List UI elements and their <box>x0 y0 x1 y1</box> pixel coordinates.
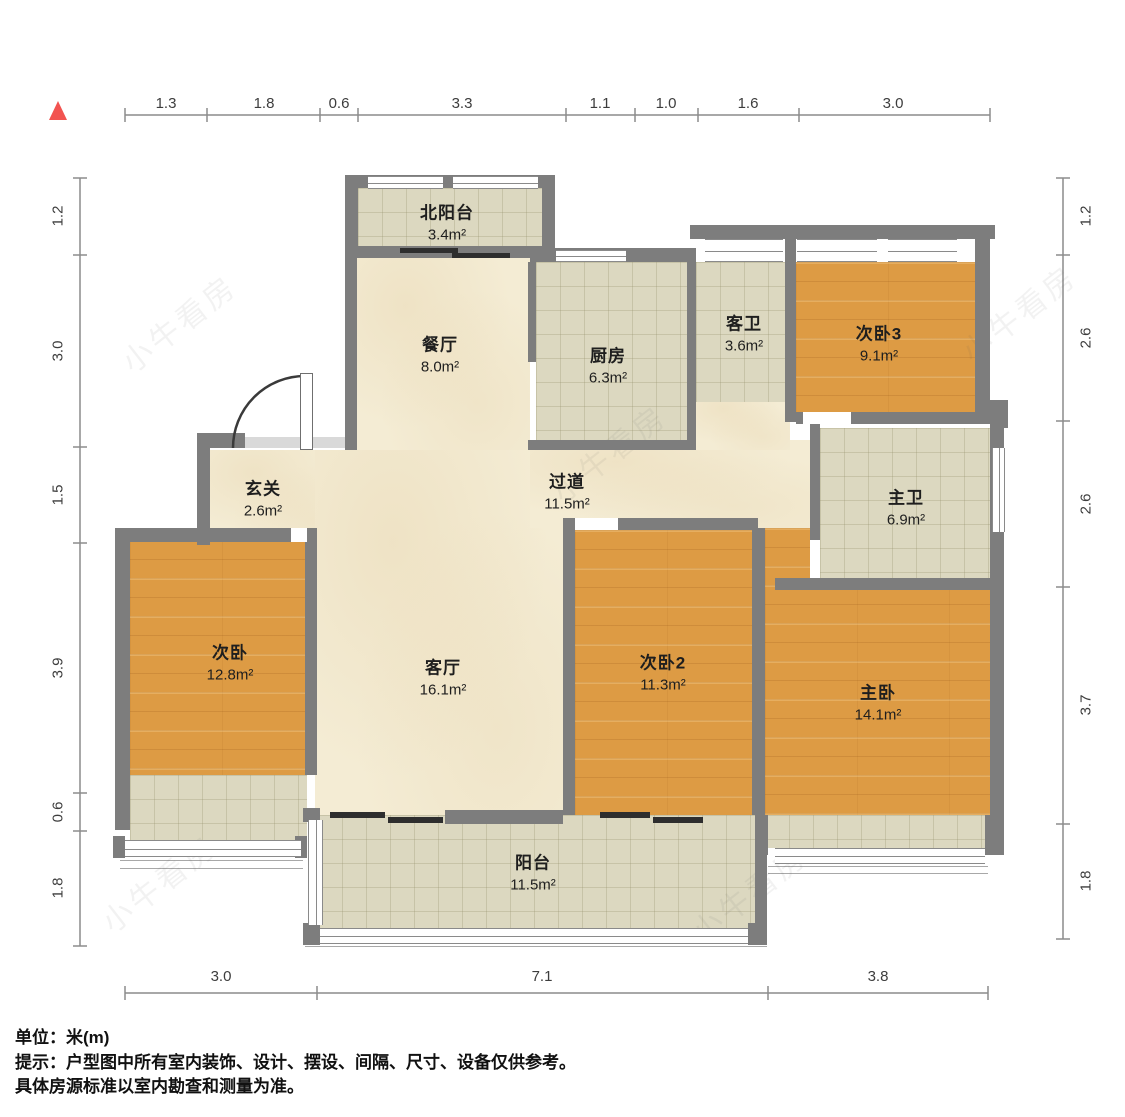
room-label-foyer: 玄关 2.6m² <box>244 475 282 520</box>
sliding-door <box>452 253 510 258</box>
room-label-guest-bath: 客卫 3.6m² <box>725 310 763 355</box>
footer-notes: 单位：米(m) 提示：户型图中所有室内装饰、设计、摆设、间隔、尺寸、设备仅供参考… <box>15 1026 576 1100</box>
room-label-kitchen: 厨房 6.3m² <box>589 342 627 387</box>
window <box>888 239 957 262</box>
dim-bottom-1: 3.0 <box>211 968 232 985</box>
room-label-balcony: 阳台 11.5m² <box>510 849 556 894</box>
dim-bottom-2: 7.1 <box>532 968 553 985</box>
room-label-north-balcony: 北阳台 3.4m² <box>420 199 474 244</box>
window <box>797 239 877 262</box>
sliding-door <box>600 812 650 818</box>
window <box>453 176 538 189</box>
window <box>705 239 783 262</box>
dim-right-5: 1.8 <box>1078 871 1095 892</box>
window-bay-master <box>775 848 985 864</box>
dim-left-4: 3.9 <box>50 658 67 679</box>
dim-left-1: 1.2 <box>50 206 67 227</box>
sliding-door <box>330 812 385 818</box>
room-label-master-bath: 主卫 6.9m² <box>887 484 925 529</box>
dim-left-2: 3.0 <box>50 341 67 362</box>
dim-top-7: 1.6 <box>738 95 759 112</box>
dim-left-6: 1.8 <box>50 878 67 899</box>
room-label-dining: 餐厅 8.0m² <box>421 331 459 376</box>
north-arrow-icon <box>49 101 67 120</box>
window-bay-bedroom <box>125 840 301 857</box>
window <box>368 176 443 189</box>
unit-note: 单位：米(m) <box>15 1026 576 1051</box>
window <box>992 448 1005 532</box>
sliding-door <box>388 817 443 823</box>
dim-bottom-3: 3.8 <box>868 968 889 985</box>
tip-note-2: 具体房源标准以室内勘查和测量为准。 <box>15 1075 576 1100</box>
floorplan-canvas: 1.3 1.8 0.6 3.3 1.1 1.0 1.6 3.0 1.2 3.0 … <box>0 0 1125 1117</box>
entry-door-leaf <box>300 373 313 450</box>
room-label-living: 客厅 16.1m² <box>420 654 467 699</box>
room-label-bedroom: 次卧 12.8m² <box>207 639 254 684</box>
dim-right-3: 2.6 <box>1078 494 1095 515</box>
room-label-bedroom2: 次卧2 11.3m² <box>640 649 686 694</box>
sliding-door <box>653 817 703 823</box>
dim-right-1: 1.2 <box>1078 206 1095 227</box>
dim-left-3: 1.5 <box>50 485 67 506</box>
tip-note: 提示：户型图中所有室内装饰、设计、摆设、间隔、尺寸、设备仅供参考。 <box>15 1051 576 1076</box>
dim-right-2: 2.6 <box>1078 328 1095 349</box>
entry-door-arc <box>0 0 1125 1117</box>
room-label-master-bedroom: 主卧 14.1m² <box>855 679 902 724</box>
room-label-hallway: 过道 11.5m² <box>544 468 590 513</box>
sliding-door <box>400 248 458 253</box>
dim-left-5: 0.6 <box>50 802 67 823</box>
window-balcony <box>320 928 748 944</box>
window <box>556 250 626 262</box>
dim-top-8: 3.0 <box>883 95 904 112</box>
dim-top-2: 1.8 <box>254 95 275 112</box>
dim-top-1: 1.3 <box>156 95 177 112</box>
dim-right-4: 3.7 <box>1078 695 1095 716</box>
dim-top-5: 1.1 <box>590 95 611 112</box>
room-label-bedroom3: 次卧3 9.1m² <box>856 320 902 365</box>
dim-top-6: 1.0 <box>656 95 677 112</box>
window-balcony-side <box>308 820 323 925</box>
dim-top-4: 3.3 <box>452 95 473 112</box>
dim-top-3: 0.6 <box>329 95 350 112</box>
